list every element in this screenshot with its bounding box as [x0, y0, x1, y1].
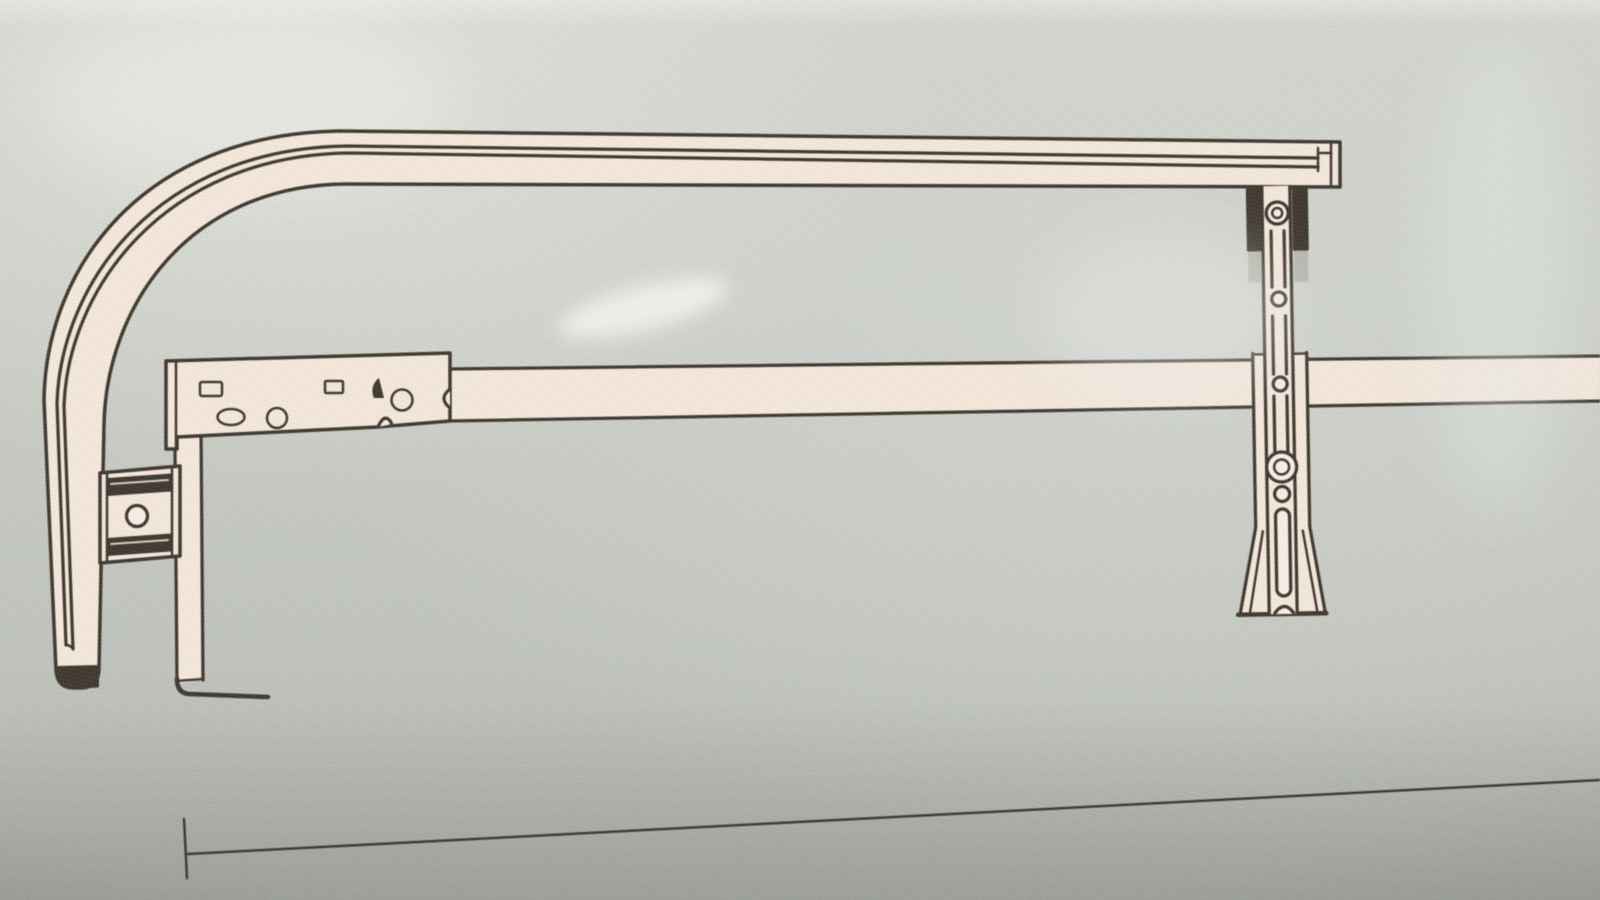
crossbar: [450, 356, 1600, 421]
clamp-pad-right: [1292, 187, 1309, 250]
baseline-tick: [184, 819, 187, 878]
strap-hole-2: [1273, 377, 1287, 391]
mounting-plate: [166, 353, 450, 449]
strap-slot-dash-1a: [1271, 231, 1272, 287]
diagram-canvas: [0, 0, 1600, 900]
plate-end-notch: [444, 389, 450, 408]
top-bolt-ring: [1266, 202, 1288, 224]
baseline-line: [188, 780, 1600, 854]
clamp-pad-shadow-right: [1294, 249, 1309, 281]
support-leg: [174, 428, 268, 697]
clamp-pad-shadow-left: [1248, 250, 1263, 282]
tube-clamp: [100, 466, 180, 563]
strap-slot-dash-3b: [1287, 396, 1288, 452]
strap-long-slot: [1275, 509, 1291, 596]
strap-slot-dash-3a: [1274, 396, 1275, 452]
strap-slot-dash-2a: [1273, 316, 1274, 374]
photo-of-diagram: [0, 0, 1600, 900]
pivot-bolt-ring: [1266, 452, 1297, 483]
baseline: [184, 780, 1600, 878]
strap-slot-dash-2b: [1286, 316, 1287, 374]
strap-hole-1: [1272, 292, 1286, 306]
rail-bottom-cap: [57, 665, 100, 688]
leg-right-edge: [201, 428, 203, 680]
plate-body: [166, 353, 450, 449]
strap-hole-3: [1275, 486, 1290, 501]
clamp-hole: [127, 506, 148, 527]
strap-slot-dash-1b: [1284, 231, 1285, 287]
clamp-pad-left: [1246, 188, 1263, 251]
